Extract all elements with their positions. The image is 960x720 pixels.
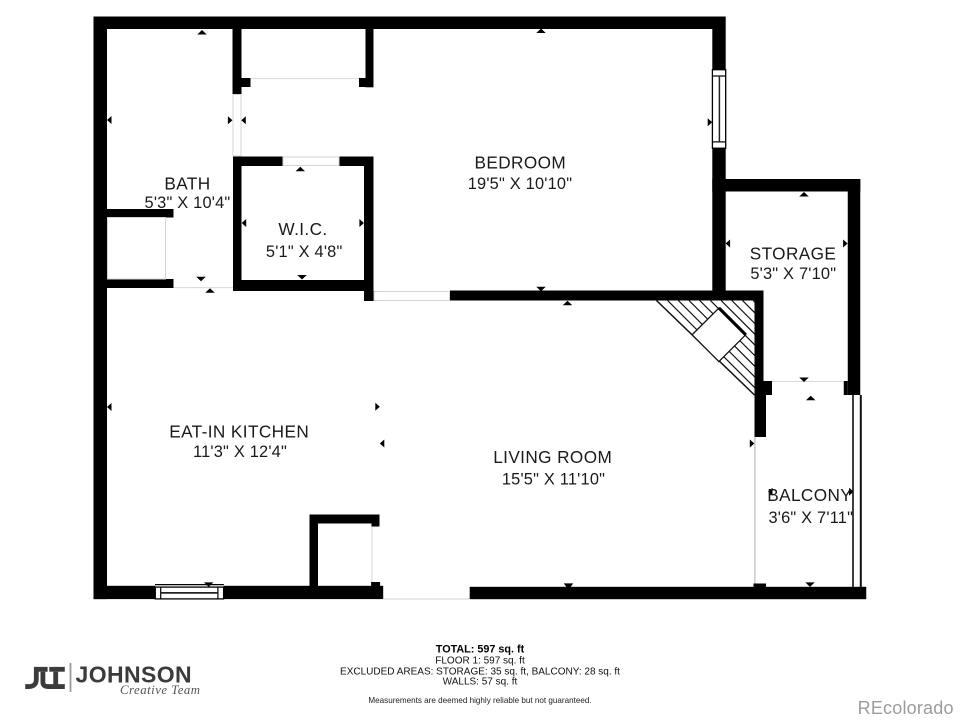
svg-text:5'1" X 4'8": 5'1" X 4'8" bbox=[266, 243, 343, 261]
svg-text:WALLS: 57 sq. ft: WALLS: 57 sq. ft bbox=[443, 676, 518, 687]
svg-text:Measurements are deemed highly: Measurements are deemed highly reliable … bbox=[368, 696, 591, 705]
svg-text:BATH: BATH bbox=[164, 173, 210, 193]
svg-text:BALCONY: BALCONY bbox=[767, 485, 852, 505]
svg-text:Creative Team: Creative Team bbox=[120, 683, 201, 697]
svg-text:19'5" X 10'10": 19'5" X 10'10" bbox=[468, 175, 573, 193]
svg-text:3'6" X 7'11": 3'6" X 7'11" bbox=[768, 509, 853, 527]
svg-text:TOTAL: 597 sq. ft: TOTAL: 597 sq. ft bbox=[436, 644, 525, 656]
svg-text:11'3" X 12'4": 11'3" X 12'4" bbox=[193, 443, 287, 461]
svg-text:EAT-IN KITCHEN: EAT-IN KITCHEN bbox=[169, 421, 309, 441]
svg-text:FLOOR 1: 597 sq. ft: FLOOR 1: 597 sq. ft bbox=[435, 656, 525, 667]
svg-text:W.I.C.: W.I.C. bbox=[278, 219, 327, 239]
svg-text:15'5" X 11'10": 15'5" X 11'10" bbox=[502, 470, 605, 488]
svg-text:5'3" X 7'10": 5'3" X 7'10" bbox=[750, 265, 836, 283]
svg-text:STORAGE: STORAGE bbox=[750, 243, 837, 263]
svg-text:BEDROOM: BEDROOM bbox=[474, 153, 566, 173]
svg-text:5'3" X 10'4": 5'3" X 10'4" bbox=[145, 194, 231, 212]
svg-text:LIVING ROOM: LIVING ROOM bbox=[493, 447, 612, 467]
svg-text:REcolorado: REcolorado bbox=[858, 698, 954, 718]
